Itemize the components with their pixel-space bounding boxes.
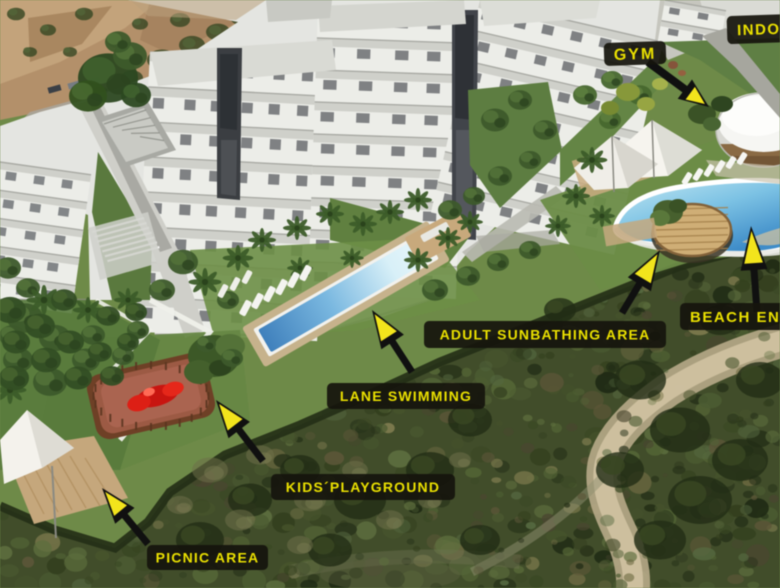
svg-text:KIDS´PLAYGROUND: KIDS´PLAYGROUND	[286, 479, 440, 495]
svg-text:BEACH ENTRANCE: BEACH ENTRANCE	[690, 309, 780, 326]
svg-text:LANE SWIMMING: LANE SWIMMING	[340, 388, 472, 404]
svg-text:INDOOR: INDOOR	[737, 20, 780, 39]
svg-text:GYM: GYM	[614, 46, 657, 64]
svg-text:ADULT SUNBATHING AREA: ADULT SUNBATHING AREA	[440, 327, 651, 343]
svg-text:PICNIC AREA: PICNIC AREA	[156, 550, 260, 566]
